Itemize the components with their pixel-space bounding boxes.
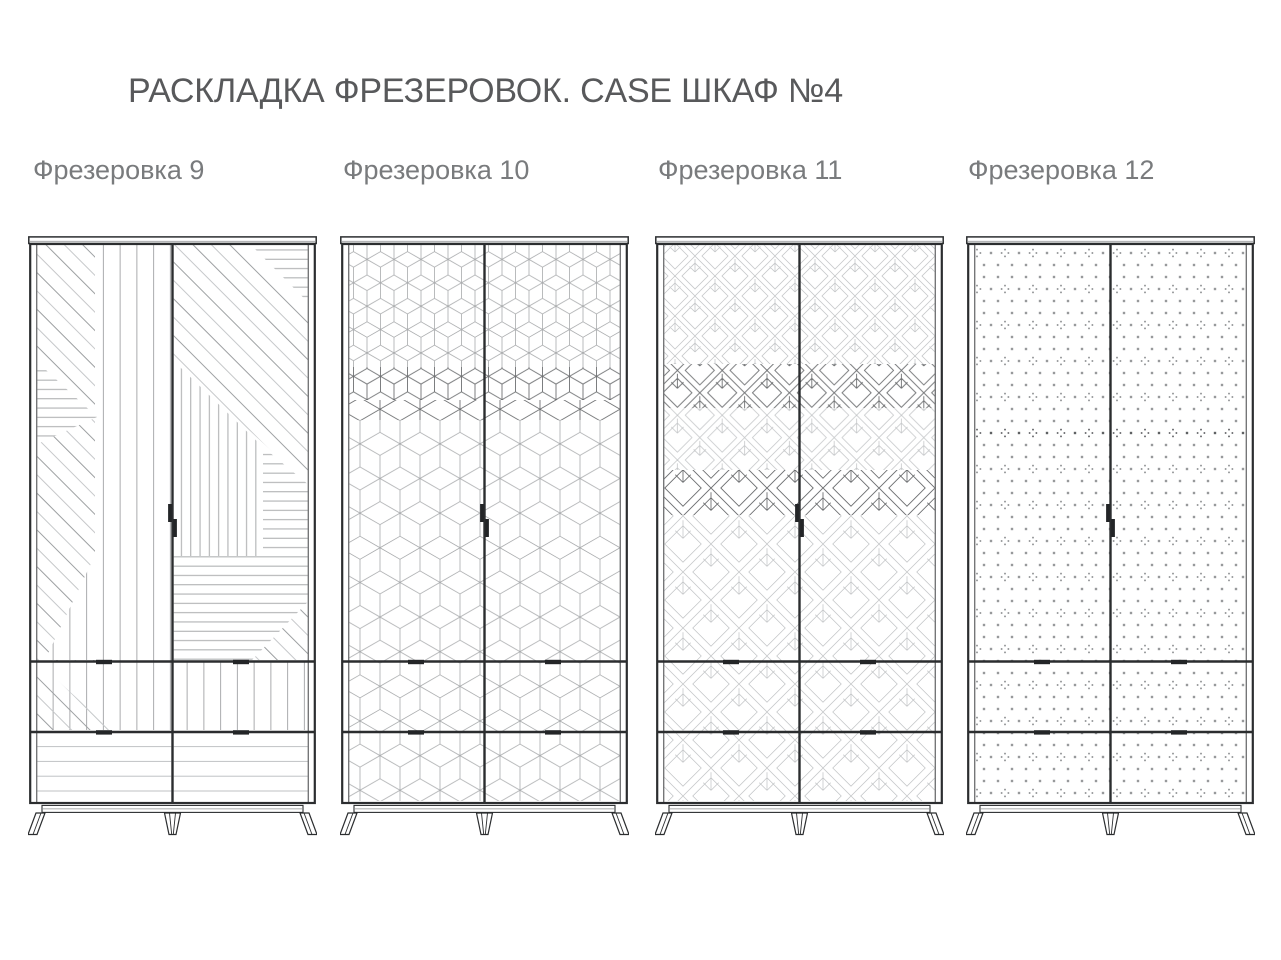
variant-label-12: Фрезеровка 12	[968, 155, 1154, 186]
base-legs	[28, 805, 317, 834]
wardrobe-drawing-12	[966, 236, 1255, 836]
wardrobe-drawing-9	[28, 236, 317, 836]
wardrobe-svg-11	[655, 236, 944, 836]
variant-label-9: Фрезеровка 9	[33, 155, 204, 186]
base-legs	[966, 805, 1255, 834]
wardrobe-svg-10	[340, 236, 629, 836]
base-legs	[340, 805, 629, 834]
milling-layout-sheet: РАСКЛАДКА ФРЕЗЕРОВОК. CASE ШКАФ №4 Фрезе…	[0, 0, 1281, 960]
wardrobe-drawing-10	[340, 236, 629, 836]
base-legs	[655, 805, 944, 834]
wardrobe-svg-9	[28, 236, 317, 836]
wardrobe-drawing-11	[655, 236, 944, 836]
variant-label-10: Фрезеровка 10	[343, 155, 529, 186]
sheet-title: РАСКЛАДКА ФРЕЗЕРОВОК. CASE ШКАФ №4	[128, 72, 843, 111]
variant-label-11: Фрезеровка 11	[658, 155, 842, 186]
wardrobe-svg-12	[966, 236, 1255, 836]
